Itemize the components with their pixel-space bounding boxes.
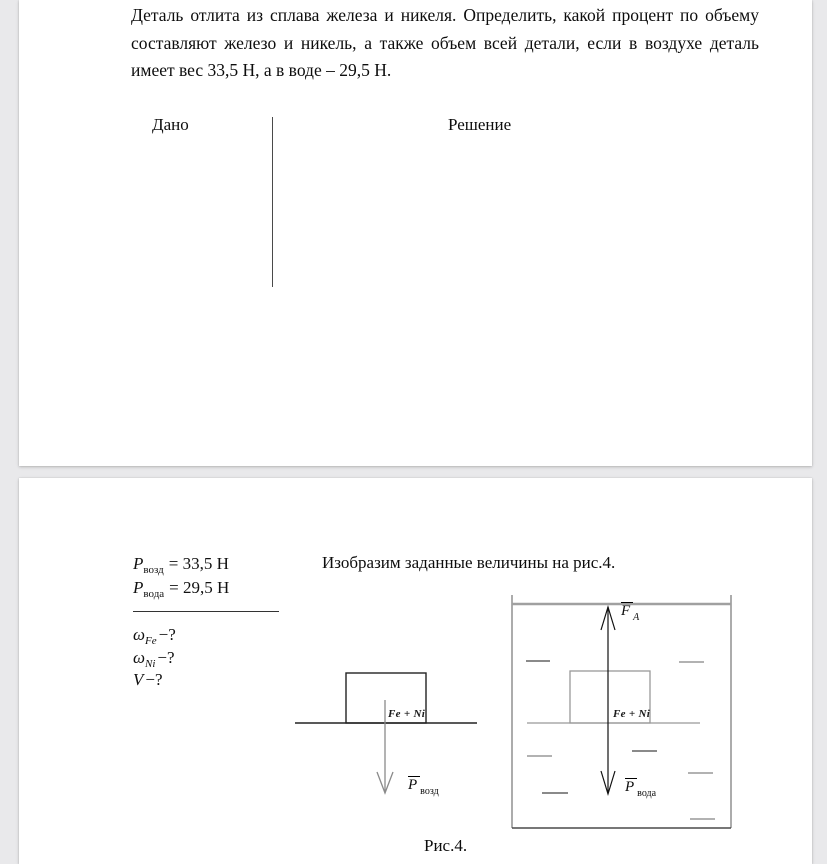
force-symbol: P (625, 778, 637, 796)
quantity-symbol: P (133, 578, 143, 597)
figure-caption: Рис.4. (424, 836, 467, 856)
force-subscript: возд (420, 786, 439, 797)
alloy-body-label-water: Fe + Ni (613, 708, 650, 720)
unknown-row-fraction-fe: ωFe−? (133, 624, 176, 648)
unknown-row-volume: V−? (133, 669, 163, 693)
quantity-symbol: P (133, 554, 143, 573)
weight-water-force-label: Pвода (625, 778, 656, 796)
given-separator-line (133, 611, 279, 612)
given-row-weight-water: Pвода= 29,5 Н (133, 577, 229, 601)
buoyancy-force-label: FA (621, 602, 639, 620)
force-symbol: F (621, 602, 633, 620)
page-2: Pвозд= 33,5 Н Pвода= 29,5 Н ωFe−? ωNi−? … (19, 478, 812, 864)
quantity-symbol: ω (133, 648, 145, 667)
force-subscript: вода (637, 788, 656, 799)
air-diagram (294, 668, 484, 808)
given-solution-divider (272, 117, 273, 287)
document-viewer: Деталь отлита из сплава железа и никеля.… (0, 0, 827, 864)
unknown-row-fraction-ni: ωNi−? (133, 647, 175, 671)
page-1: Деталь отлита из сплава железа и никеля.… (19, 0, 812, 466)
quantity-value: = 33,5 Н (169, 554, 229, 573)
problem-text: Деталь отлита из сплава железа и никеля.… (131, 2, 759, 85)
given-header: Дано (152, 115, 189, 135)
alloy-body-label-air: Fe + Ni (388, 708, 425, 720)
quantity-subscript: вода (143, 588, 164, 600)
given-row-weight-air: Pвозд= 33,5 Н (133, 553, 229, 577)
quantity-subscript: Fe (145, 635, 157, 647)
force-subscript: A (633, 612, 639, 623)
weight-air-force-label: Pвозд (408, 776, 439, 794)
quantity-symbol: ω (133, 625, 145, 644)
quantity-value: = 29,5 Н (169, 578, 229, 597)
quantity-value: −? (145, 670, 162, 689)
force-symbol: P (408, 776, 420, 794)
quantity-symbol: V (133, 670, 143, 689)
quantity-value: −? (159, 625, 176, 644)
quantity-subscript: возд (143, 564, 163, 576)
quantity-value: −? (157, 648, 174, 667)
solution-header: Решение (448, 115, 511, 135)
solution-intro-text: Изобразим заданные величины на рис.4. (322, 553, 615, 573)
